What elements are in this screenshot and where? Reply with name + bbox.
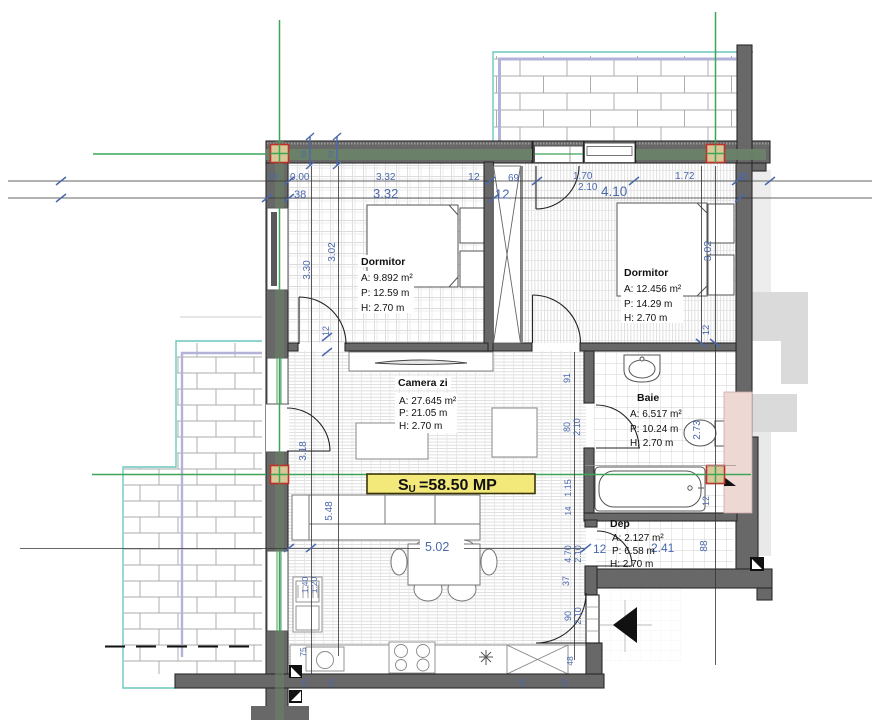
svg-text:2.73: 2.73 xyxy=(692,420,703,440)
svg-text:5.02: 5.02 xyxy=(425,540,449,554)
svg-text:18: 18 xyxy=(268,171,278,181)
svg-text:80: 80 xyxy=(562,422,572,432)
svg-text:P: 12.59 m: P: 12.59 m xyxy=(361,288,409,299)
svg-text:S: S xyxy=(398,477,409,494)
svg-text:3.32: 3.32 xyxy=(376,172,396,183)
svg-text:12: 12 xyxy=(593,542,607,556)
svg-text:=58.50 MP: =58.50 MP xyxy=(419,477,497,494)
svg-text:38: 38 xyxy=(294,189,306,201)
svg-text:4.70: 4.70 xyxy=(563,545,573,563)
svg-text:P: 10.24 m: P: 10.24 m xyxy=(630,424,678,435)
svg-text:35: 35 xyxy=(737,172,749,183)
svg-text:3.32: 3.32 xyxy=(373,186,398,201)
svg-text:3.18: 3.18 xyxy=(298,441,309,461)
svg-text:25: 25 xyxy=(560,679,569,687)
svg-text:2.10: 2.10 xyxy=(573,545,583,563)
svg-text:A: 12.456 m²: A: 12.456 m² xyxy=(624,284,682,295)
svg-text:91: 91 xyxy=(562,373,572,383)
svg-text:1.70: 1.70 xyxy=(573,171,593,182)
svg-text:12: 12 xyxy=(468,171,480,183)
svg-text:P: 6.58 m: P: 6.58 m xyxy=(612,546,655,557)
svg-text:2.10: 2.10 xyxy=(578,182,598,193)
svg-text:P: 21.05 m: P: 21.05 m xyxy=(399,408,447,419)
svg-text:37: 37 xyxy=(561,576,571,586)
svg-text:69: 69 xyxy=(508,173,520,184)
svg-text:H: 2.70 m: H: 2.70 m xyxy=(610,559,653,570)
svg-text:12: 12 xyxy=(321,326,331,336)
svg-text:2.10: 2.10 xyxy=(573,607,583,625)
svg-text:12: 12 xyxy=(701,325,712,336)
svg-text:25: 25 xyxy=(300,679,309,687)
svg-text:2.10: 2.10 xyxy=(572,418,582,436)
svg-text:H: 2.70 m: H: 2.70 m xyxy=(361,303,404,314)
svg-text:A: 9.892 m²: A: 9.892 m² xyxy=(361,273,413,284)
svg-text:4.10: 4.10 xyxy=(601,184,627,199)
svg-text:Camera zi: Camera zi xyxy=(398,377,448,389)
svg-text:Baie: Baie xyxy=(637,392,659,404)
svg-text:H: 2.70 m: H: 2.70 m xyxy=(624,313,667,324)
svg-text:A: 27.645 m²: A: 27.645 m² xyxy=(399,396,457,407)
svg-text:Dormitor: Dormitor xyxy=(624,267,668,279)
svg-text:12: 12 xyxy=(701,496,711,506)
svg-text:Dep: Dep xyxy=(610,518,630,530)
svg-text:H: 2.70 m: H: 2.70 m xyxy=(630,438,673,449)
svg-text:3.30: 3.30 xyxy=(302,260,313,280)
svg-text:1.20: 1.20 xyxy=(309,576,319,593)
svg-text:3.02: 3.02 xyxy=(327,242,338,262)
svg-text:1.15: 1.15 xyxy=(563,479,573,497)
svg-text:P: 14.29 m: P: 14.29 m xyxy=(624,299,672,310)
svg-text:5.48: 5.48 xyxy=(324,501,335,521)
svg-text:A: 6.517 m²: A: 6.517 m² xyxy=(630,409,682,420)
svg-text:3.02: 3.02 xyxy=(702,241,714,262)
svg-text:50: 50 xyxy=(301,150,308,158)
svg-text:U: U xyxy=(409,484,416,495)
svg-text:50: 50 xyxy=(328,150,335,158)
svg-text:90: 90 xyxy=(563,611,573,621)
svg-text:1.72: 1.72 xyxy=(675,171,695,182)
svg-text:25: 25 xyxy=(518,679,527,687)
svg-text:25: 25 xyxy=(327,679,336,687)
svg-text:88: 88 xyxy=(699,540,710,552)
svg-text:12: 12 xyxy=(495,187,509,202)
svg-text:A: 2.127 m²: A: 2.127 m² xyxy=(612,533,664,544)
svg-text:14: 14 xyxy=(564,506,573,515)
svg-text:75: 75 xyxy=(298,647,308,657)
svg-text:0.00: 0.00 xyxy=(290,172,310,183)
svg-text:48: 48 xyxy=(565,656,575,666)
svg-text:H: 2.70 m: H: 2.70 m xyxy=(399,421,442,432)
svg-text:Dormitor: Dormitor xyxy=(361,256,405,268)
